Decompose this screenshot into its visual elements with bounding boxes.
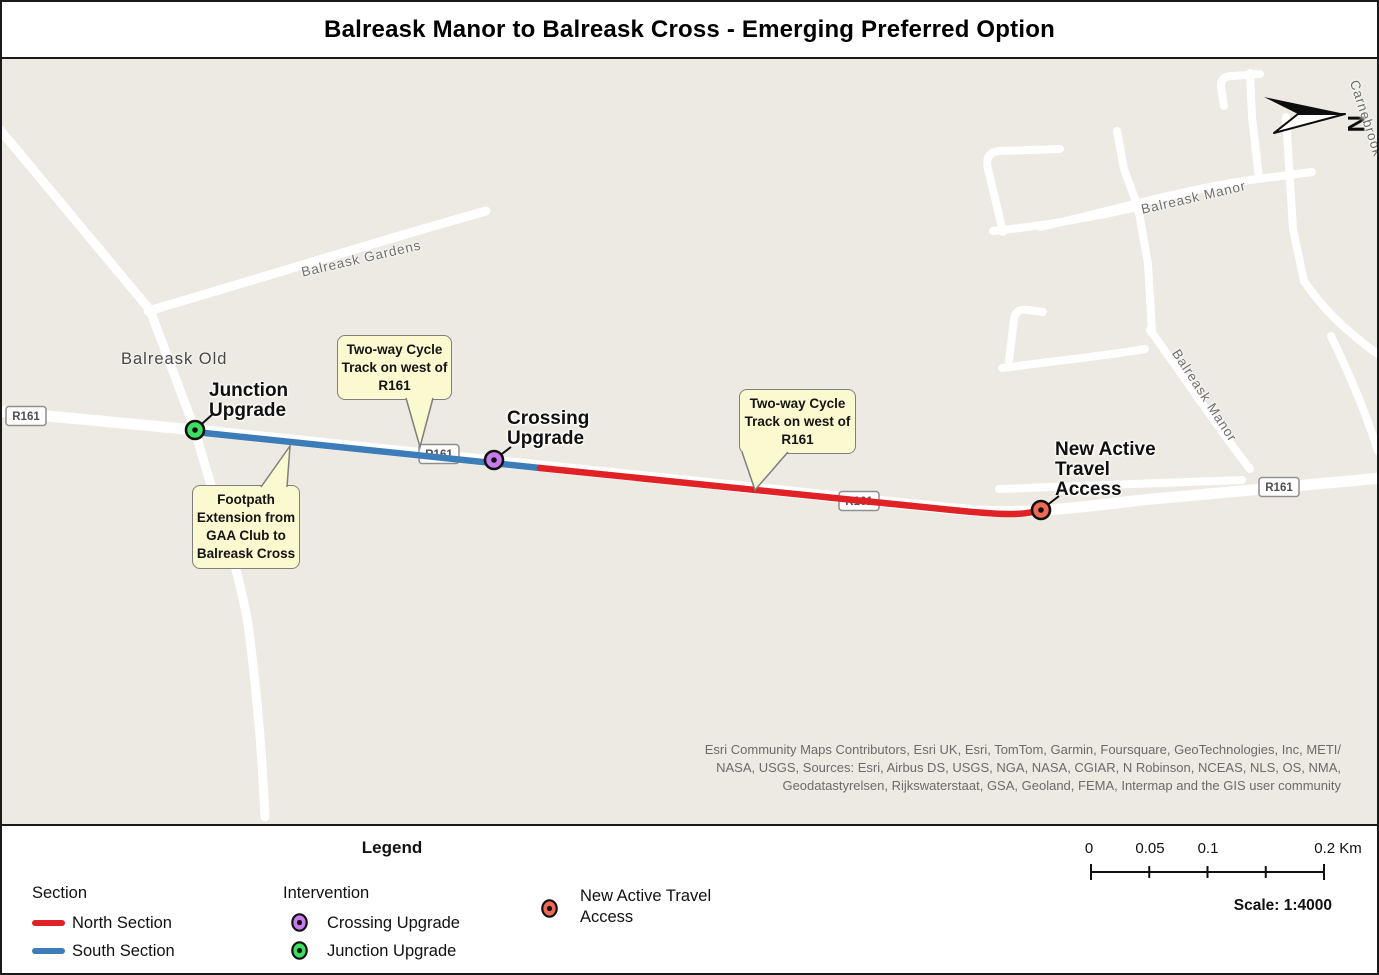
scalebar <box>1088 862 1328 881</box>
legend-panel: Legend Section North Section South Secti… <box>2 824 1377 973</box>
scalebar-label-02km: 0.2 Km <box>1298 840 1378 857</box>
map-export-page: Balreask Manor to Balreask Cross - Emerg… <box>0 0 1379 975</box>
map-canvas: R161 R161 R161 R161 <box>2 59 1377 824</box>
road-culdesac-2 <box>1009 310 1043 360</box>
new-active-travel-access-label: New Active Travel Access <box>1055 440 1156 500</box>
legend-section-heading: Section <box>32 884 87 903</box>
south-section-swatch <box>32 948 65 954</box>
north-section-swatch <box>32 920 65 926</box>
road-estate-3 <box>1250 73 1259 178</box>
legend-title: Legend <box>312 838 472 858</box>
road-northwest <box>2 125 195 430</box>
legend-north-section: North Section <box>72 913 172 934</box>
r161-shield-east: R161 <box>1259 478 1299 497</box>
scale-ratio: Scale: 1:4000 <box>1182 897 1332 915</box>
callout-footpath-extension: Footpath Extension from GAA Club to Balr… <box>192 485 300 569</box>
map-attribution: Esri Community Maps Contributors, Esri U… <box>681 741 1341 795</box>
scalebar-label-005: 0.05 <box>1120 840 1180 857</box>
road-estate-2 <box>1117 131 1152 330</box>
legend-junction-upgrade: Junction Upgrade <box>327 941 456 962</box>
page-title: Balreask Manor to Balreask Cross - Emerg… <box>324 16 1055 44</box>
crossing-upgrade-legend-icon <box>290 912 309 933</box>
junction-upgrade-label: Junction Upgrade <box>209 381 288 421</box>
r161-shield-west: R161 <box>6 407 46 426</box>
junction-upgrade-legend-icon <box>290 940 309 961</box>
place-label-balreask-old: Balreask Old <box>121 350 227 369</box>
legend-new-active-travel-access: New Active Travel Access <box>580 886 711 928</box>
legend-south-section: South Section <box>72 941 175 962</box>
road-estate-4 <box>1286 117 1304 281</box>
road-estate-5 <box>1304 281 1377 357</box>
legend-intervention-heading: Intervention <box>283 884 369 903</box>
road-culdesac-1 <box>987 149 1060 232</box>
new-active-travel-access-legend-icon <box>540 898 559 919</box>
south-section-line <box>195 432 540 468</box>
legend-crossing-upgrade: Crossing Upgrade <box>327 913 460 934</box>
road-estate-6 <box>1002 349 1145 368</box>
svg-text:R161: R161 <box>1265 482 1293 494</box>
scalebar-label-01: 0.1 <box>1178 840 1238 857</box>
basemap: R161 R161 R161 R161 <box>2 59 1377 824</box>
callout-cycle-track-south: Two-way Cycle Track on west of R161 <box>337 335 452 400</box>
callout-cycle-track-north: Two-way Cycle Track on west of R161 <box>739 389 856 454</box>
road-network <box>2 73 1377 817</box>
title-bar: Balreask Manor to Balreask Cross - Emerg… <box>2 2 1377 59</box>
scalebar-label-0: 0 <box>1074 840 1104 857</box>
crossing-upgrade-label: Crossing Upgrade <box>507 409 589 449</box>
svg-text:R161: R161 <box>12 411 40 423</box>
